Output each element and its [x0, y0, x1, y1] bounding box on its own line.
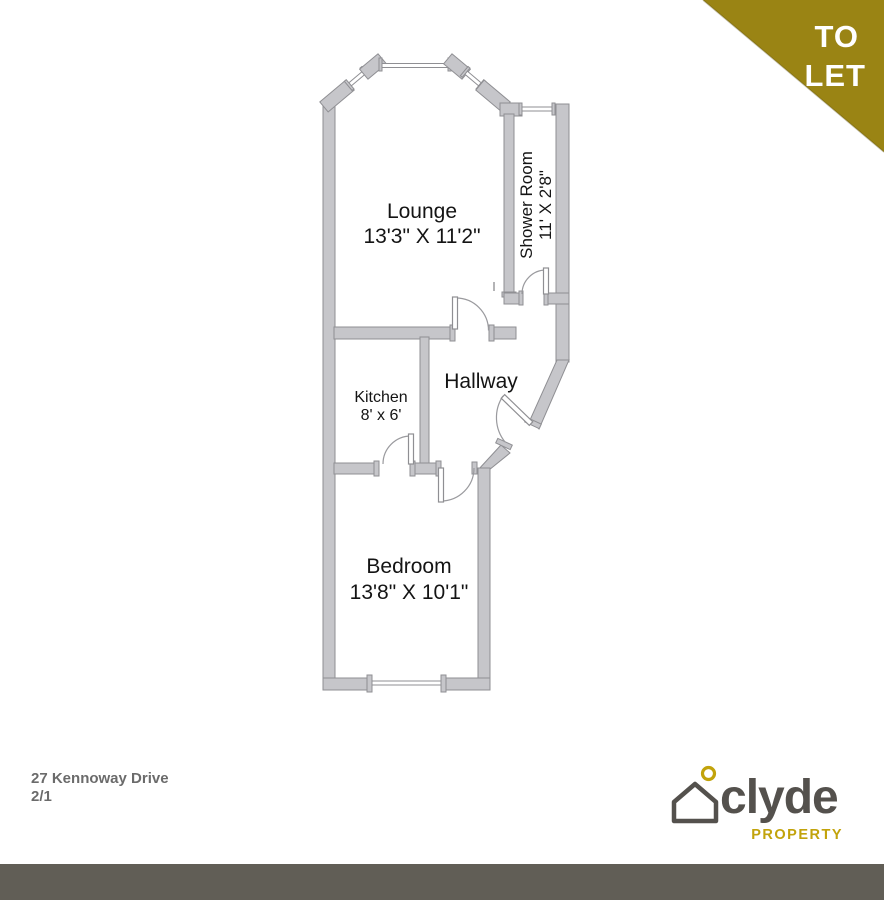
lounge-dimensions: 13'3" X 11'2"	[363, 225, 480, 248]
shower-door-arc	[522, 270, 546, 294]
wall-bedroom-right	[478, 468, 490, 690]
lounge-label: Lounge	[387, 200, 457, 223]
entrance-door-leaf	[501, 395, 533, 426]
to-let-banner: TO LET	[703, 0, 884, 152]
bedroom-label: Bedroom	[366, 555, 451, 578]
shower-door-leaf	[544, 268, 549, 294]
floorplan-canvas: TO LET	[0, 0, 884, 900]
hallway-label: Hallway	[444, 370, 518, 393]
window-cap	[367, 675, 372, 692]
bedroom-door-leaf	[439, 468, 444, 502]
wall-right-outer	[556, 104, 569, 362]
bedroom-door-arc	[441, 468, 474, 501]
bay-window-top	[382, 64, 448, 68]
brand-name: clyde	[720, 771, 838, 824]
door-jamb	[374, 461, 379, 476]
wall-lounge-bottom-left	[334, 327, 455, 339]
logo-circle-icon	[703, 768, 715, 780]
lounge-door-leaf	[453, 297, 458, 329]
wall-bedroom-bottom-right	[441, 678, 490, 690]
banner-line1: TO	[815, 19, 860, 54]
floor-plan: Lounge 13'3" X 11'2" Shower Room 11' X 2…	[320, 54, 569, 692]
banner-line2: LET	[804, 58, 866, 93]
kitchen-dimensions: 8' x 6'	[361, 407, 402, 424]
wall-shower-left	[504, 114, 514, 293]
wall-angled-lower	[478, 445, 510, 470]
wall-kitchen-bottom	[334, 463, 378, 474]
kitchen-door-leaf	[409, 434, 414, 464]
wall-divider-stub	[415, 463, 438, 474]
address-line2: 2/1	[31, 788, 52, 805]
wall-shower-bottom-right	[548, 293, 569, 304]
house-icon	[674, 784, 716, 821]
shower-room-dimensions: 11' X 2'8"	[536, 170, 555, 240]
entrance-door-arc	[496, 396, 505, 442]
wall-angled-upper	[530, 360, 569, 429]
door-jamb	[489, 325, 494, 341]
address-block: 27 Kennoway Drive 2/1	[31, 770, 169, 805]
kitchen-label: Kitchen	[354, 389, 407, 406]
brand-tagline: PROPERTY	[751, 827, 843, 843]
shower-room-label-group: Shower Room 11' X 2'8"	[517, 151, 555, 259]
bedroom-window	[372, 681, 441, 685]
window-cap	[379, 58, 382, 71]
bedroom-dimensions: 13'8" X 10'1"	[350, 581, 469, 604]
clyde-logo: clyde PROPERTY	[674, 768, 843, 844]
footer-bar	[0, 864, 884, 900]
shower-room-label: Shower Room	[517, 151, 536, 259]
address-line1: 27 Kennoway Drive	[31, 770, 169, 787]
wall-kitchen-partition	[420, 337, 429, 465]
window-cap	[552, 103, 555, 115]
floorplan-page: TO LET	[0, 0, 884, 900]
shower-window	[522, 107, 552, 111]
wall-bedroom-bottom-left	[323, 678, 372, 690]
window-cap	[441, 675, 446, 692]
kitchen-door-arc	[383, 436, 411, 464]
wall-left-outer	[323, 106, 335, 690]
lounge-door-arc	[456, 298, 489, 331]
